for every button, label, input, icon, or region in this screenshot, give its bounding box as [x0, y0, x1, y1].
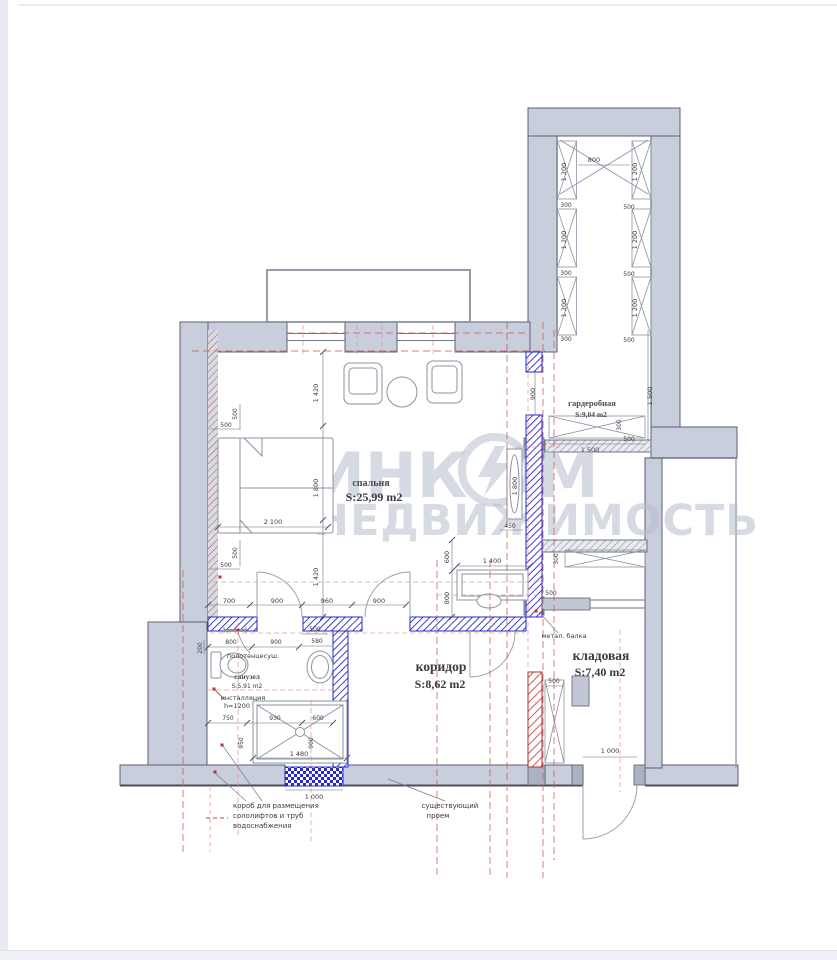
- dim-label: 1 000: [305, 793, 324, 801]
- annotation-existing-opening: существующий: [422, 802, 479, 810]
- room-label-corridor: коридор: [416, 659, 467, 674]
- dim-label: 1 800: [312, 479, 320, 498]
- dim-label: 900: [271, 597, 283, 605]
- wall: [651, 427, 737, 458]
- dim-label: 800: [225, 639, 237, 646]
- room-area-storage: S:7,40 m2: [575, 665, 626, 679]
- armchair: [427, 361, 462, 403]
- wall: [528, 108, 680, 136]
- annotation-existing-opening: проем: [427, 812, 450, 820]
- dim-label: 960: [321, 597, 333, 605]
- dim-label: 1 420: [312, 568, 320, 587]
- dim-label: 1 420: [312, 384, 320, 403]
- dim-label: 500: [220, 422, 232, 429]
- room-area-corridor: S:8,62 m2: [415, 677, 466, 691]
- dim-label: 500: [545, 590, 557, 597]
- dim-label: 1 200: [631, 231, 639, 250]
- page-left-edge: [0, 0, 8, 960]
- wall: [180, 322, 208, 622]
- dim-label: 200: [197, 642, 204, 654]
- room-label-storage: кладовая: [573, 648, 630, 663]
- dim-label: 500: [548, 678, 560, 685]
- dim-label: 1 800: [511, 477, 519, 496]
- wall: [120, 765, 285, 785]
- dim-label: 1 200: [631, 163, 639, 182]
- dim-label: 500: [623, 337, 635, 344]
- dim-label: 1 400: [483, 557, 502, 565]
- existing-opening-infill: [285, 767, 343, 786]
- sink: [307, 651, 333, 683]
- dim-label: 800: [443, 592, 451, 604]
- dim-label: 300: [560, 270, 572, 277]
- annotation-towel-dryer: полотенцесуш.: [227, 652, 279, 660]
- dim-label: 750: [222, 715, 234, 722]
- wall: [345, 322, 397, 352]
- water-heater: [572, 676, 589, 706]
- armchair: [344, 363, 382, 404]
- wall-new: [410, 617, 526, 631]
- balcony-outline: [267, 270, 470, 322]
- shower-drain: [296, 728, 305, 737]
- dim-label: 2 100: [264, 518, 283, 526]
- dim-label: 500: [220, 562, 232, 569]
- room-label-bedroom: спальня: [352, 478, 390, 489]
- dim-label: 1 200: [631, 299, 639, 318]
- dim-label: 300: [553, 553, 560, 565]
- dim-label: 700: [223, 597, 235, 605]
- room-area-bedroom: S:25,99 m2: [346, 490, 403, 504]
- room-label-wardrobe: гардеробная: [568, 398, 616, 408]
- floor-plan-page: ИНК М НЕДВИЖИМОСТЬ: [0, 0, 837, 960]
- wall-new: [208, 617, 257, 631]
- wall-new: [526, 352, 542, 372]
- annotation-metal-beam: метал. балка: [541, 632, 586, 640]
- dim-label: 1 200: [560, 299, 568, 318]
- dim-label: 800: [588, 156, 600, 164]
- round-table: [387, 377, 417, 407]
- floor-plan-drawing: ИНК М НЕДВИЖИМОСТЬ: [0, 0, 837, 960]
- room-label-bathroom: санузел: [234, 672, 261, 681]
- dim-label: 500: [623, 436, 635, 443]
- dim-label: 600: [443, 551, 451, 563]
- page-bottom-edge: [0, 951, 837, 960]
- annotation-installation: инсталляция: [221, 694, 266, 702]
- wall: [651, 136, 680, 427]
- annotation-duct: водоснабжения: [233, 822, 292, 830]
- dim-label: 1 000: [601, 747, 620, 755]
- dim-label: 500: [232, 547, 239, 559]
- room-area-bathroom: S:5,91 m2: [232, 683, 263, 690]
- dim-label: 600: [312, 715, 324, 722]
- dim-label: 500: [309, 626, 321, 633]
- dim-label: 1 500: [646, 387, 654, 406]
- dim-label: 580: [311, 638, 323, 645]
- annotation-duct: короб для размещения: [233, 802, 319, 810]
- dim-label: 1 500: [581, 446, 600, 454]
- dim-label: 500: [623, 204, 635, 211]
- annotation-duct: сололифтов и труб: [233, 812, 303, 820]
- dim-label: 300: [616, 419, 623, 431]
- dim-label: 450: [504, 523, 516, 530]
- dim-label: 1 200: [560, 163, 568, 182]
- dim-label: 900: [529, 388, 537, 400]
- annotation-installation-h: h=1200: [224, 702, 250, 710]
- dim-label: 500: [623, 271, 635, 278]
- dim-label: 930: [269, 715, 281, 722]
- wall-inner-hatch-strip: [208, 330, 218, 622]
- dim-label: 950: [238, 737, 245, 749]
- wall: [528, 136, 557, 352]
- dim-label: 300: [560, 202, 572, 209]
- dim-label: 1 480: [290, 750, 309, 758]
- dim-label: 300: [560, 336, 572, 343]
- desk-chair: [477, 594, 501, 608]
- dim-label: 900: [308, 737, 315, 749]
- dim-label: 900: [373, 597, 385, 605]
- dim-label: 900: [270, 639, 282, 646]
- wall-demolished: [528, 672, 542, 767]
- room-area-wardrobe: S:9,04 m2: [575, 410, 607, 419]
- wall: [455, 322, 530, 352]
- dim-label: 1 200: [560, 231, 568, 250]
- dim-label: 500: [232, 408, 239, 420]
